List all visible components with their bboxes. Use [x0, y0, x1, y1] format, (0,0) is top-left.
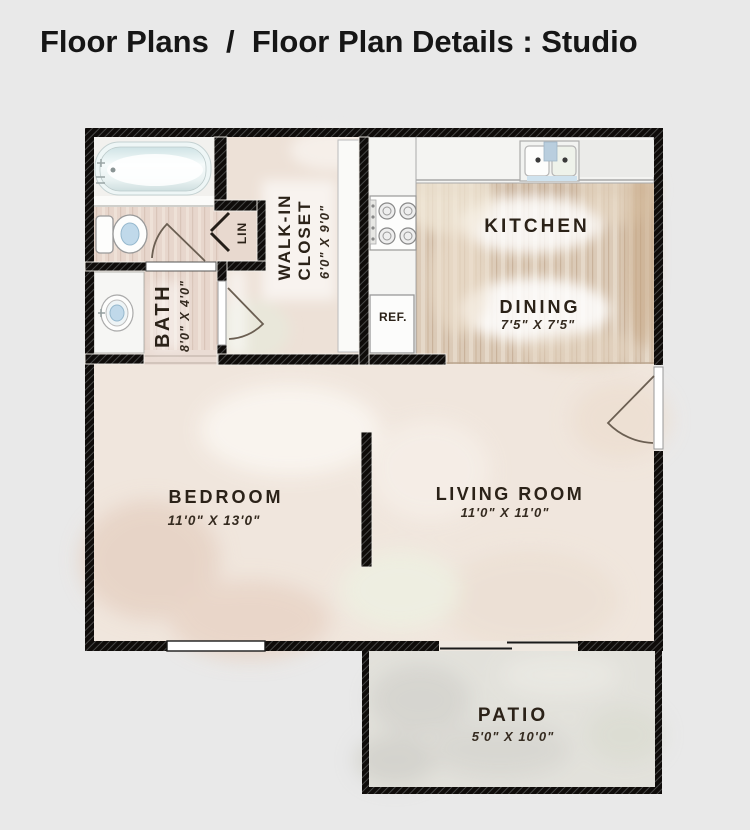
svg-text:DINING: DINING — [500, 297, 581, 317]
svg-text:5'0" X 10'0": 5'0" X 10'0" — [472, 729, 555, 744]
svg-text:REF.: REF. — [379, 310, 407, 324]
svg-text:PATIO: PATIO — [478, 705, 548, 726]
svg-text:LIVING ROOM: LIVING ROOM — [436, 484, 585, 504]
svg-text:KITCHEN: KITCHEN — [484, 216, 589, 237]
svg-text:11'0" X 11'0": 11'0" X 11'0" — [461, 505, 550, 520]
svg-text:WALK-IN: WALK-IN — [275, 194, 294, 281]
svg-text:BEDROOM: BEDROOM — [169, 487, 284, 507]
svg-text:7'5" X 7'5": 7'5" X 7'5" — [501, 317, 575, 332]
svg-text:LIN: LIN — [235, 222, 249, 244]
svg-text:CLOSET: CLOSET — [295, 200, 314, 281]
svg-text:BATH: BATH — [152, 284, 174, 348]
svg-text:8'0" X 4'0": 8'0" X 4'0" — [178, 280, 192, 352]
svg-text:11'0" X 13'0": 11'0" X 13'0" — [168, 513, 261, 528]
svg-text:6'0" X 9'0": 6'0" X 9'0" — [317, 205, 332, 279]
